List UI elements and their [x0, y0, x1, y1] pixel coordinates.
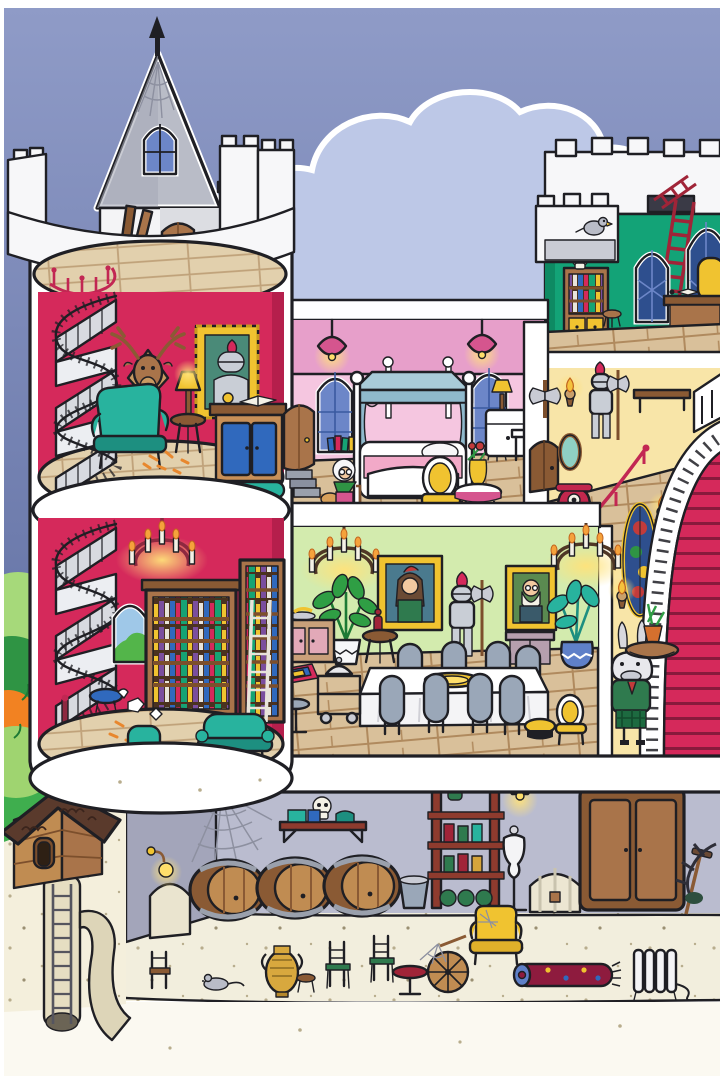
- oval-mirror: [560, 435, 580, 469]
- rolled-rug: [514, 962, 621, 986]
- bedroom-tower-door: [284, 404, 320, 497]
- old-man-portrait: [506, 566, 556, 630]
- bucket: [400, 876, 428, 908]
- dining-yellow-stool: [525, 719, 555, 740]
- tall-bookshelf-with-ladder: [240, 560, 284, 722]
- tower-base: [30, 743, 292, 813]
- attic-small-window: [636, 250, 668, 322]
- stacked-books: [327, 436, 354, 451]
- large-bookshelf: [142, 580, 240, 716]
- green-attic: [536, 138, 724, 370]
- turret-dormer-window: [144, 124, 176, 174]
- bedroom-wall-upper: [272, 320, 544, 374]
- landing-door: [530, 440, 558, 492]
- front-battlement: [536, 194, 618, 262]
- dining-ceiling-slab: [264, 503, 600, 527]
- attic-floor-slab: [540, 352, 724, 370]
- tower-library: [38, 518, 284, 779]
- wardrobe: [580, 784, 684, 910]
- barrels: [190, 856, 400, 920]
- dining-hall: [264, 503, 628, 760]
- ladder-shaft: [44, 876, 80, 1031]
- writing-desk: [210, 393, 286, 481]
- stone-arch-door: [150, 884, 190, 938]
- lady-portrait: [378, 556, 442, 630]
- library-window: [114, 606, 146, 662]
- scene-canvas: [0, 0, 724, 1080]
- bedroom-roof-slab: [266, 300, 548, 320]
- castle-cutaway-illustration: [0, 0, 724, 1080]
